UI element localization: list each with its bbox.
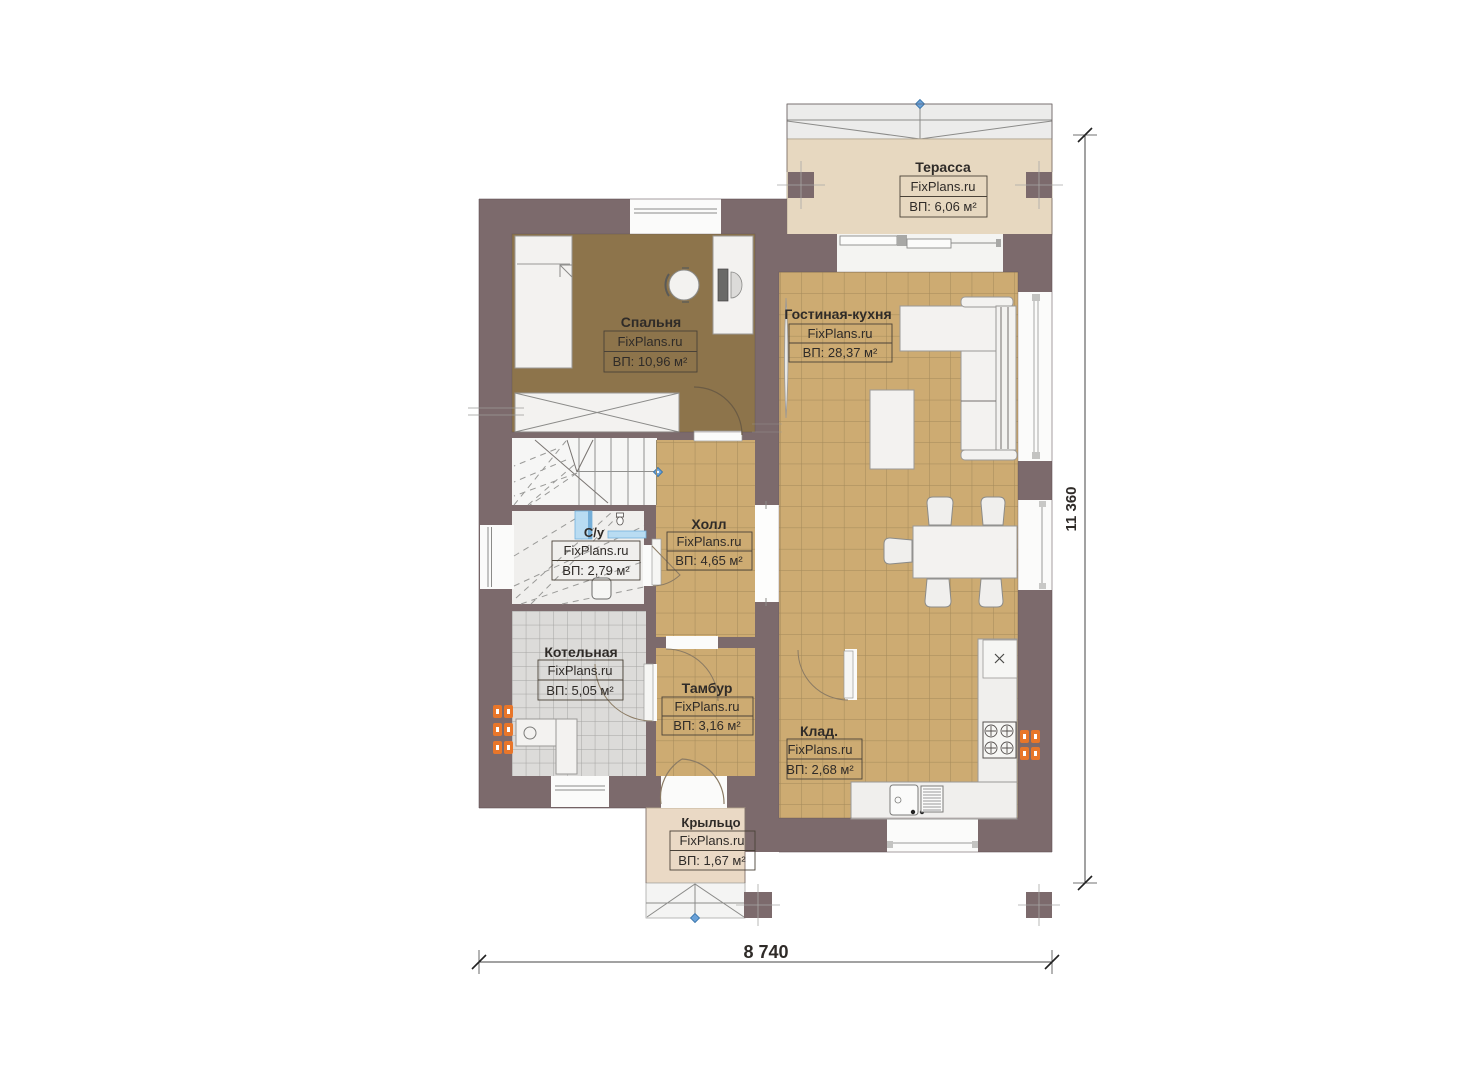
svg-text:FixPlans.ru: FixPlans.ru — [674, 699, 739, 714]
svg-text:FixPlans.ru: FixPlans.ru — [676, 534, 741, 549]
svg-text:Гостиная-кухня: Гостиная-кухня — [784, 306, 891, 322]
svg-text:Тамбур: Тамбур — [682, 680, 733, 696]
svg-text:FixPlans.ru: FixPlans.ru — [679, 833, 744, 848]
svg-text:ВП: 10,96 м²: ВП: 10,96 м² — [613, 354, 688, 369]
svg-text:ВП: 2,79 м²: ВП: 2,79 м² — [562, 563, 630, 578]
svg-text:FixPlans.ru: FixPlans.ru — [787, 742, 852, 757]
svg-text:Клад.: Клад. — [800, 723, 838, 739]
svg-text:ВП: 6,06 м²: ВП: 6,06 м² — [909, 199, 977, 214]
svg-text:ВП: 4,65 м²: ВП: 4,65 м² — [675, 553, 743, 568]
svg-text:ВП: 1,67 м²: ВП: 1,67 м² — [678, 853, 746, 868]
svg-text:Холл: Холл — [691, 516, 726, 532]
svg-text:ВП: 5,05 м²: ВП: 5,05 м² — [546, 683, 614, 698]
svg-text:FixPlans.ru: FixPlans.ru — [617, 334, 682, 349]
svg-text:Котельная: Котельная — [544, 644, 617, 660]
svg-text:Спальня: Спальня — [621, 314, 681, 330]
svg-text:FixPlans.ru: FixPlans.ru — [563, 543, 628, 558]
svg-text:С/у: С/у — [584, 525, 605, 540]
svg-text:11 360: 11 360 — [1063, 486, 1080, 531]
svg-text:FixPlans.ru: FixPlans.ru — [807, 326, 872, 341]
svg-text:FixPlans.ru: FixPlans.ru — [910, 179, 975, 194]
svg-text:ВП: 2,68 м²: ВП: 2,68 м² — [786, 762, 854, 777]
svg-text:Терасса: Терасса — [915, 159, 971, 175]
svg-text:ВП: 3,16 м²: ВП: 3,16 м² — [673, 718, 741, 733]
svg-text:8 740: 8 740 — [743, 942, 788, 962]
svg-text:ВП: 28,37 м²: ВП: 28,37 м² — [803, 345, 878, 360]
svg-text:FixPlans.ru: FixPlans.ru — [547, 663, 612, 678]
svg-text:Крыльцо: Крыльцо — [681, 815, 740, 830]
